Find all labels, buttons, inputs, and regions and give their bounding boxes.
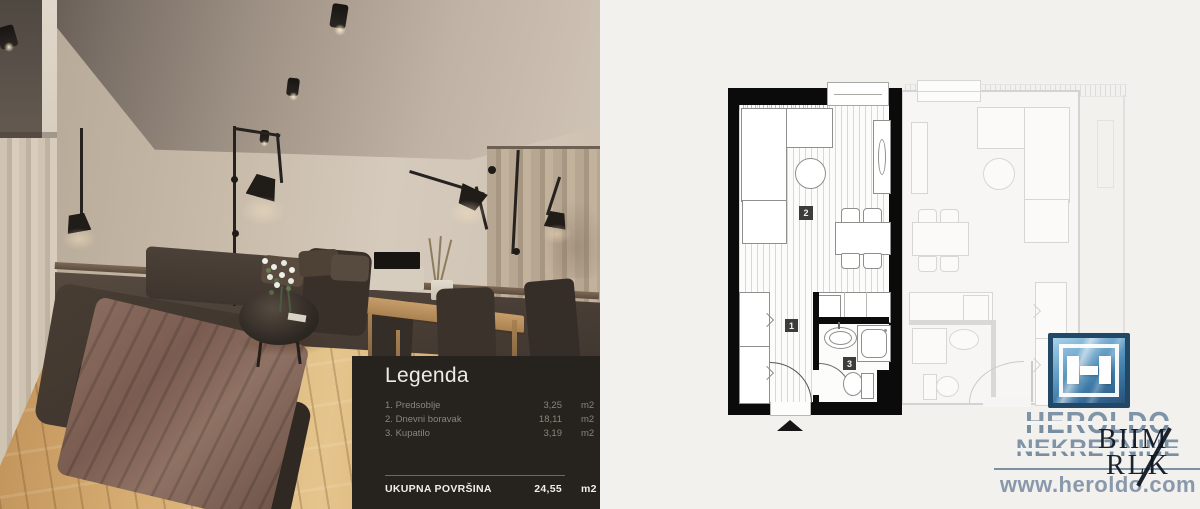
toilet-tank-symbol bbox=[923, 374, 937, 400]
lamp-glow bbox=[542, 224, 572, 244]
serif-watermark-line2: RLK bbox=[1106, 452, 1171, 480]
legend-item: 3. Kupatilo 3,19 m2 bbox=[385, 428, 585, 442]
kitchen-sink-symbol bbox=[963, 295, 989, 321]
toilet-bowl-symbol bbox=[936, 376, 959, 397]
coffee-table-symbol bbox=[983, 158, 1015, 190]
toilet-bowl-symbol bbox=[843, 372, 863, 396]
dining-table-symbol bbox=[835, 222, 891, 255]
room-marker-1: 1 bbox=[785, 319, 798, 332]
lamp-glow bbox=[448, 200, 488, 226]
legend-divider bbox=[385, 475, 565, 476]
window-symbol bbox=[827, 82, 889, 106]
heroldo-house-logo-icon bbox=[1048, 333, 1130, 408]
total-label: UKUPNA POVRŠINA bbox=[385, 483, 492, 495]
listing-image: Legenda 1. Predsoblje 3,25 m2 2. Dnevni … bbox=[0, 0, 1200, 509]
room-marker-3: 3 bbox=[843, 357, 856, 370]
door-swing-arc bbox=[969, 361, 1024, 403]
door-leaf bbox=[1031, 361, 1033, 402]
white-flowers bbox=[262, 258, 268, 264]
interior-wall bbox=[813, 317, 889, 324]
lamp-joint bbox=[232, 230, 239, 237]
faucet-symbol bbox=[838, 322, 840, 329]
spotlight-glow bbox=[261, 140, 268, 147]
room-area: 18,11 bbox=[518, 414, 562, 425]
chair-symbol bbox=[863, 253, 882, 269]
chair-symbol bbox=[940, 256, 959, 272]
cabinet-detail bbox=[878, 139, 886, 175]
room-area: 3,19 bbox=[518, 428, 562, 439]
tv-cabinet-symbol bbox=[911, 122, 928, 194]
bath-sink-symbol bbox=[949, 329, 979, 350]
toilet-tank-symbol bbox=[861, 373, 874, 399]
dining-table-symbol bbox=[912, 222, 969, 256]
shower-symbol bbox=[857, 325, 891, 362]
bath-sink-symbol bbox=[824, 327, 857, 349]
adjacent-unit-line bbox=[1123, 95, 1125, 345]
window-glass-line bbox=[834, 94, 882, 95]
shower-symbol bbox=[912, 328, 947, 364]
legend-item: 1. Predsoblje 3,25 m2 bbox=[385, 400, 585, 414]
entrance-arrow-icon bbox=[777, 420, 803, 431]
sink-basin bbox=[829, 331, 852, 345]
lamp-joint bbox=[231, 176, 238, 183]
entry-door-opening bbox=[770, 402, 811, 416]
interior-wall bbox=[813, 395, 819, 402]
sofa-symbol bbox=[1024, 107, 1070, 203]
interior-wall bbox=[909, 320, 993, 325]
shaft-column bbox=[877, 370, 889, 402]
ottoman-symbol bbox=[742, 200, 787, 244]
window-symbol bbox=[917, 80, 981, 102]
legend-panel: Legenda 1. Predsoblje 3,25 m2 2. Dnevni … bbox=[352, 356, 600, 509]
lamp-glow bbox=[62, 228, 96, 250]
spotlight-glow bbox=[289, 92, 298, 101]
coffee-table-symbol bbox=[795, 158, 826, 189]
room-name: 1. Predsoblje bbox=[385, 400, 440, 411]
sofa-symbol bbox=[741, 108, 787, 202]
chair-symbol bbox=[918, 256, 937, 272]
lamp-glow bbox=[240, 196, 286, 226]
tv-screen bbox=[374, 252, 420, 269]
room-area: 3,25 bbox=[518, 400, 562, 411]
room-area-unit: m2 bbox=[581, 400, 594, 411]
spotlight-glow bbox=[334, 24, 346, 36]
lamp-mount bbox=[488, 166, 496, 174]
shower-tray bbox=[861, 329, 887, 358]
wall-lamp-pole bbox=[80, 128, 83, 220]
tv-cabinet-symbol bbox=[873, 120, 891, 194]
floorplan-panel: 2 3 bbox=[600, 0, 1200, 509]
sofa-cushion bbox=[330, 254, 369, 282]
ottoman-symbol bbox=[1024, 199, 1069, 243]
room-area-unit: m2 bbox=[581, 428, 594, 439]
spotlight-glow bbox=[4, 42, 14, 52]
legend-title: Legenda bbox=[385, 364, 469, 388]
total-area-unit: m2 bbox=[581, 483, 597, 495]
flower-leaves bbox=[266, 268, 271, 273]
floorplan-unit-main: 2 3 bbox=[728, 88, 902, 415]
lamp-joint bbox=[513, 248, 520, 255]
room-name: 3. Kupatilo bbox=[385, 428, 430, 439]
chair-symbol bbox=[841, 253, 860, 269]
logo-gloss bbox=[1053, 338, 1125, 403]
shower-drain bbox=[884, 329, 887, 332]
legend-item: 2. Dnevni boravak 18,11 m2 bbox=[385, 414, 585, 428]
interior-photo: Legenda 1. Predsoblje 3,25 m2 2. Dnevni … bbox=[0, 0, 600, 509]
adjacent-unit-cabinet bbox=[1097, 120, 1114, 188]
room-name: 2. Dnevni boravak bbox=[385, 414, 462, 425]
sideboard bbox=[362, 266, 424, 290]
room-area-unit: m2 bbox=[581, 414, 594, 425]
total-area: 24,55 bbox=[512, 483, 562, 495]
room-marker-2: 2 bbox=[799, 206, 813, 220]
legend-total-row: UKUPNA POVRŠINA 24,55 m2 bbox=[385, 483, 585, 499]
